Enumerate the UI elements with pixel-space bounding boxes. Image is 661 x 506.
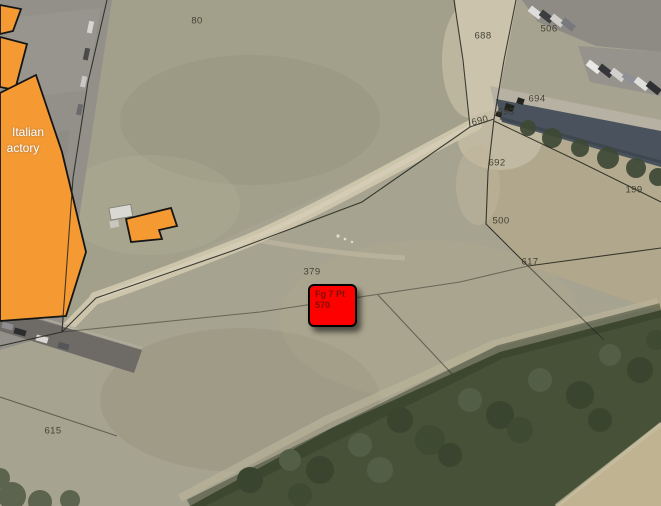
marker-parcel-number: 570 xyxy=(315,300,353,311)
cadastral-map-canvas[interactable]: 80 688 506 694 693 690 692 500 617 199 3… xyxy=(0,0,661,506)
parcel-marker[interactable]: Fg 7 Pt 570 xyxy=(308,284,357,327)
marker-sheet-ref: Fg 7 Pt xyxy=(315,289,353,300)
aerial-imagery xyxy=(0,0,661,506)
